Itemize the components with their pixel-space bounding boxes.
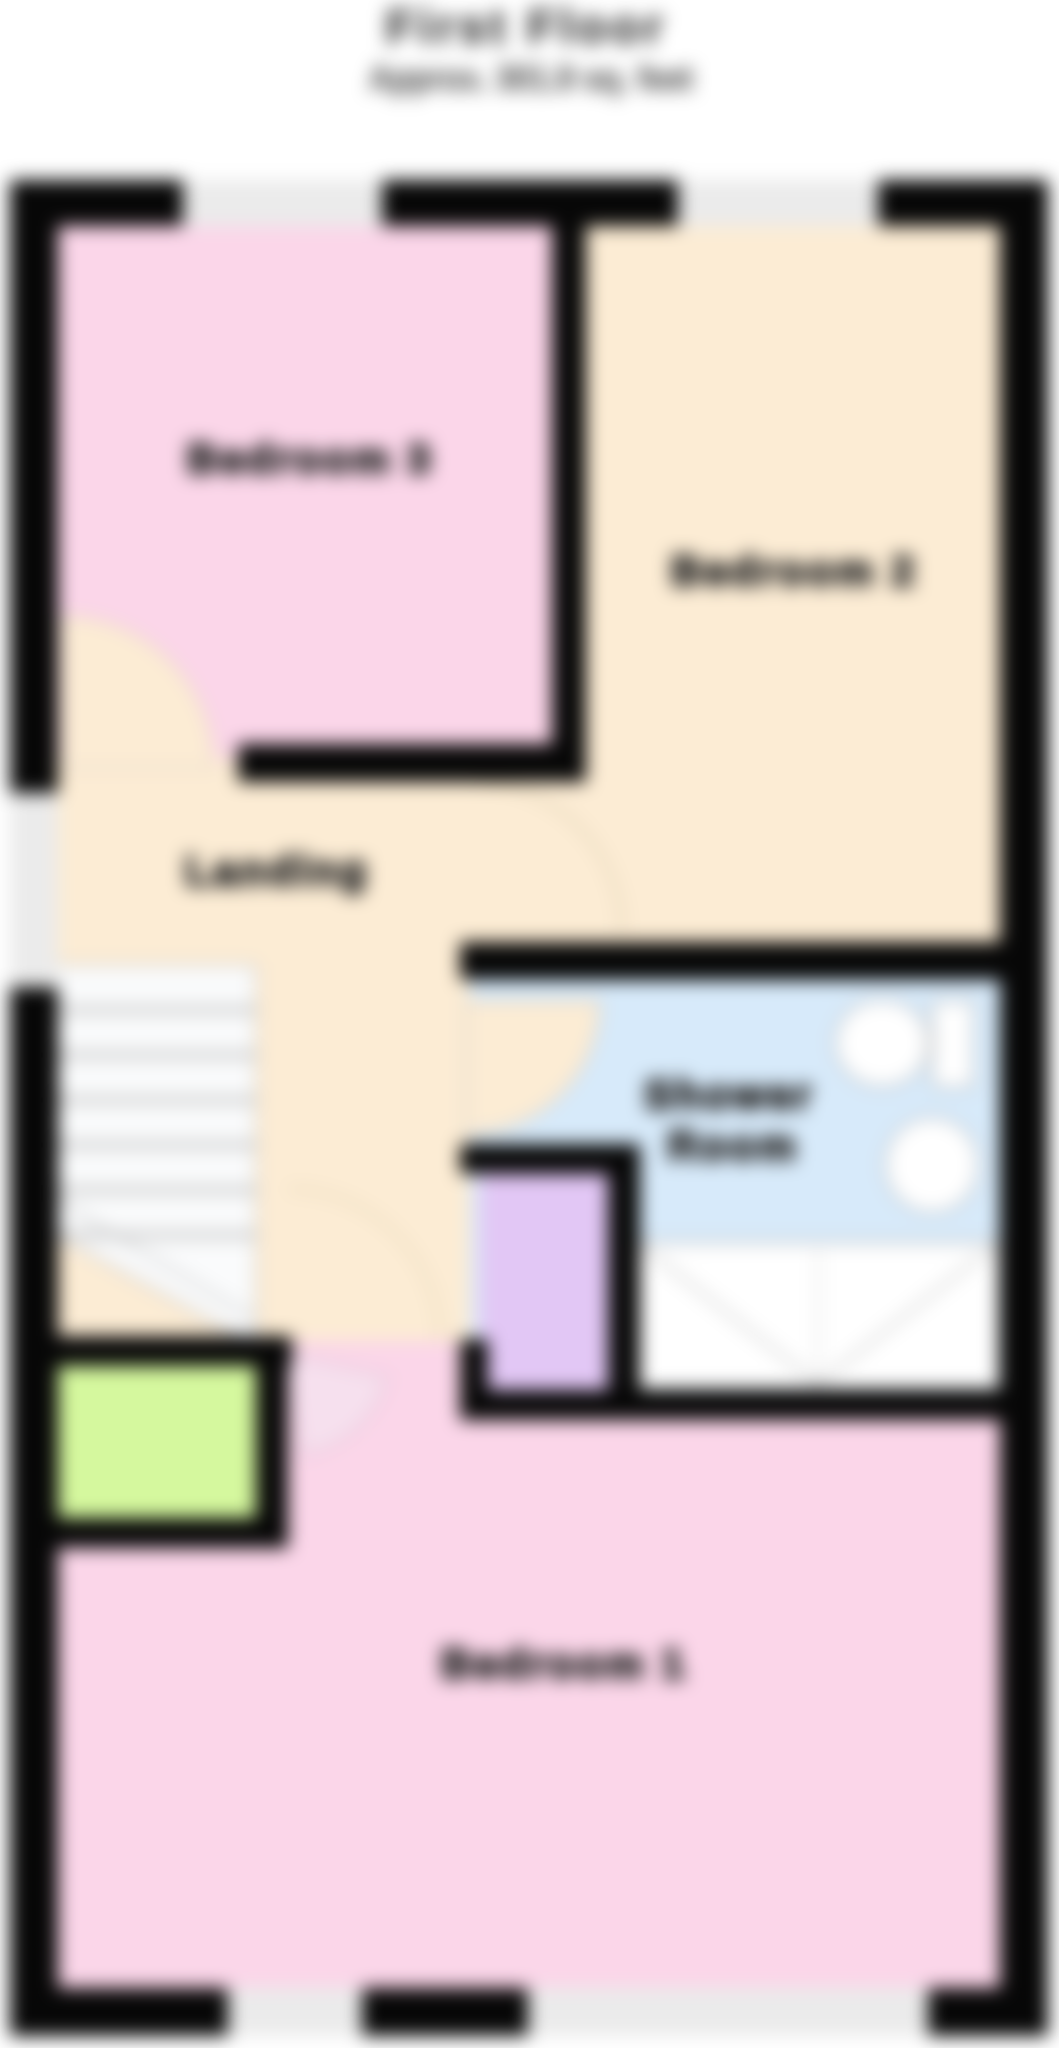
svg-text:Bedroom 1: Bedroom 1 [441, 1640, 687, 1687]
svg-text:Landing: Landing [185, 847, 369, 894]
svg-text:Approx. 301.9 sq. feet: Approx. 301.9 sq. feet [369, 59, 693, 98]
svg-text:Bedroom 2: Bedroom 2 [671, 547, 917, 594]
svg-text:First Floor: First Floor [385, 1, 666, 54]
svg-text:Room: Room [668, 1122, 799, 1169]
svg-text:Shower: Shower [644, 1071, 814, 1118]
svg-text:Bedroom 3: Bedroom 3 [187, 435, 433, 482]
